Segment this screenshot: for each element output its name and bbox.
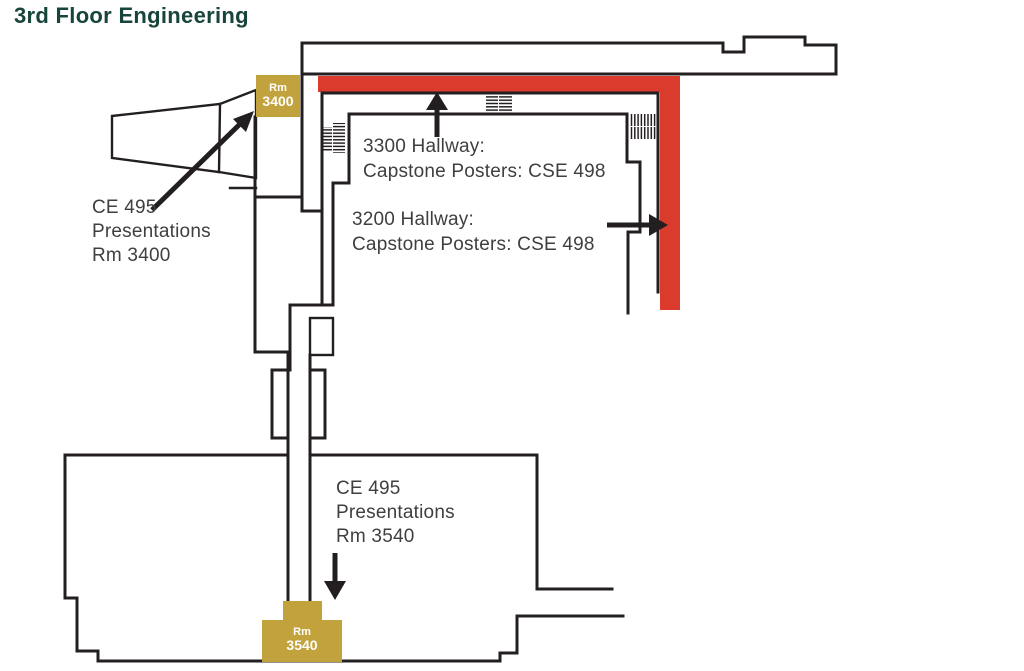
corridor-bulge-room [272, 370, 325, 438]
label-line: Capstone Posters: CSE 498 [363, 159, 606, 184]
hallway-3300-wall [322, 93, 658, 292]
label-line: Presentations [336, 501, 455, 525]
stairs-icon-west [321, 123, 345, 153]
arrow-down-icon [324, 553, 346, 600]
label-line: CE 495 [336, 477, 455, 501]
wedge-divider-wall [219, 104, 220, 172]
label-line: CE 495 [92, 196, 211, 220]
center-corridor-walls [255, 117, 322, 455]
stairs-icon-east [630, 114, 656, 139]
stairs-icon-north [486, 93, 512, 115]
label-line: 3200 Hallway: [352, 207, 595, 232]
label-hallway-3200: 3200 Hallway: Capstone Posters: CSE 498 [352, 207, 595, 257]
floor-plan-drawing [0, 0, 1024, 671]
label-line: Capstone Posters: CSE 498 [352, 232, 595, 257]
south-corridor-walls [288, 455, 310, 601]
label-hallway-3300: 3300 Hallway: Capstone Posters: CSE 498 [363, 134, 606, 184]
label-ce495-rm3540: CE 495 Presentations Rm 3540 [336, 477, 455, 549]
corridor-side-room [310, 318, 333, 355]
room-number: 3400 [256, 95, 300, 108]
floor-plan-page: 3rd Floor Engineering CE 495 Presentatio… [0, 0, 1024, 671]
label-line: Presentations [92, 220, 211, 244]
room-3400-label: Rm 3400 [256, 82, 300, 108]
room-3540-label: Rm 3540 [262, 626, 342, 652]
lecture-hall-wedge [112, 90, 256, 178]
label-line: Rm 3540 [336, 525, 455, 549]
room-number: 3540 [262, 639, 342, 652]
label-line: 3300 Hallway: [363, 134, 606, 159]
page-title: 3rd Floor Engineering [14, 3, 249, 29]
label-line: Rm 3400 [92, 244, 211, 268]
label-ce495-rm3400: CE 495 Presentations Rm 3400 [92, 196, 211, 268]
